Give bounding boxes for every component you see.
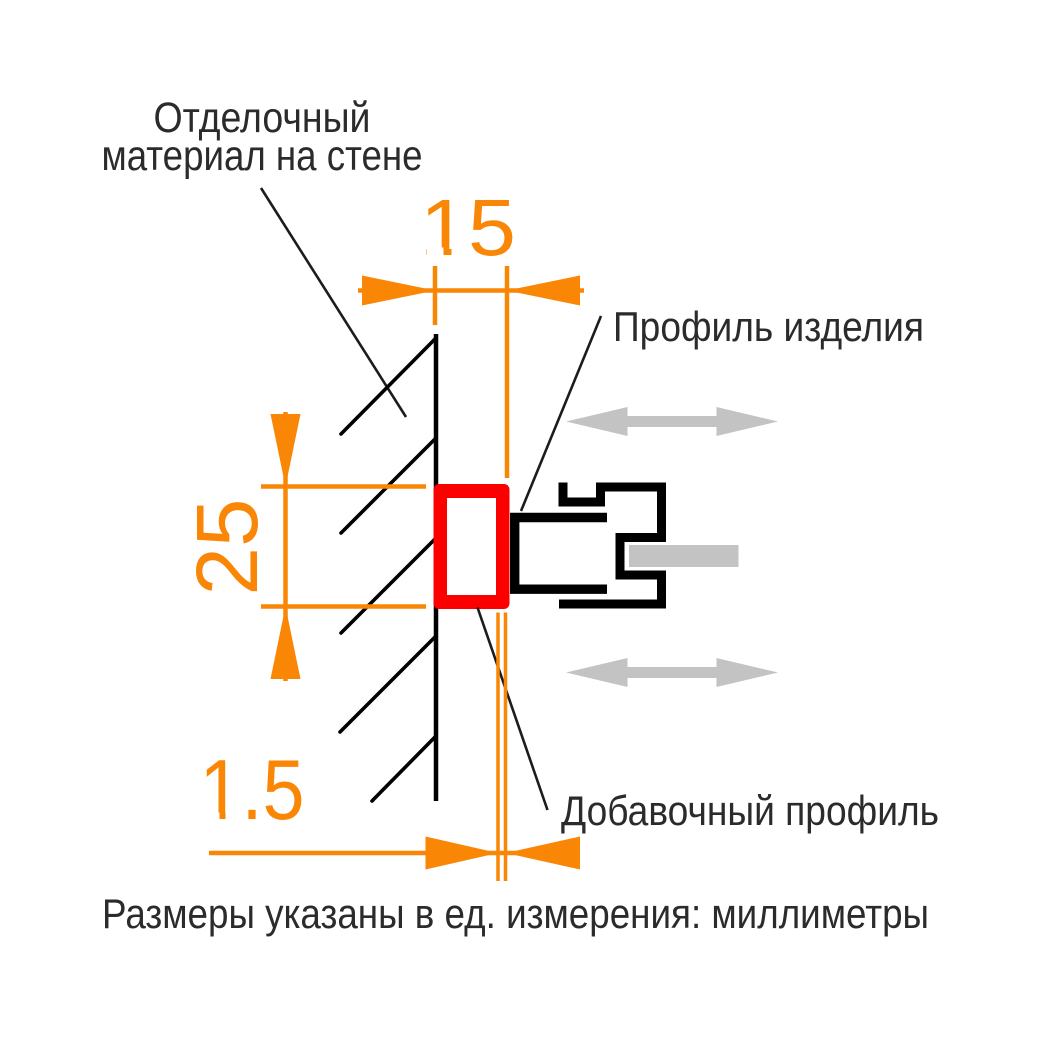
svg-text:Размеры указаны в ед. измерени: Размеры указаны в ед. измерения: миллиме…	[102, 890, 929, 937]
svg-text:Профиль изделия: Профиль изделия	[613, 303, 924, 350]
svg-text:15: 15	[420, 183, 516, 272]
svg-text:1.5: 1.5	[200, 743, 305, 838]
svg-text:материал на стене: материал на стене	[102, 132, 423, 180]
svg-text:25: 25	[179, 499, 276, 596]
svg-text:Добавочный профиль: Добавочный профиль	[561, 787, 939, 834]
